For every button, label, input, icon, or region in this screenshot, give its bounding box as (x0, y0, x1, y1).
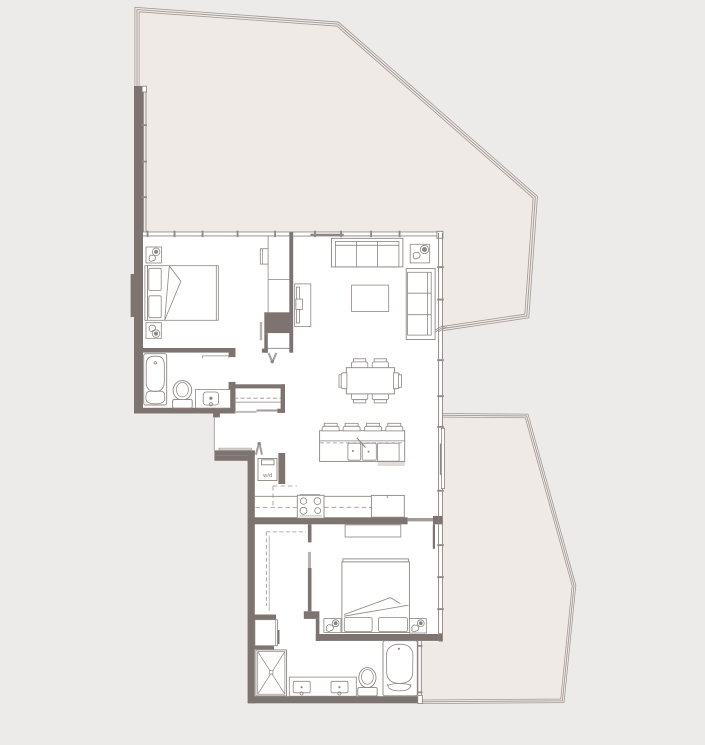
svg-text:w/d: w/d (262, 473, 272, 479)
